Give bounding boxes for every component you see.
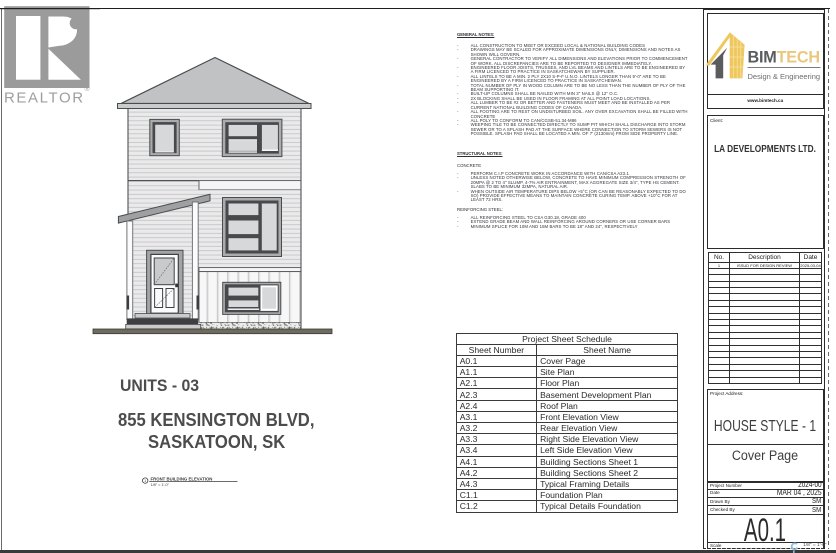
svg-text:REALTOR: REALTOR — [4, 90, 85, 107]
svg-text:1/8" = 1'-0": 1/8" = 1'-0" — [151, 483, 170, 487]
svg-text:Design & Engineering: Design & Engineering — [748, 72, 821, 81]
svg-text:1: 1 — [144, 478, 146, 482]
svg-text:BIMTECH: BIMTECH — [748, 49, 820, 67]
svg-text:FRONT BUILDING ELEVATION: FRONT BUILDING ELEVATION — [151, 476, 213, 481]
